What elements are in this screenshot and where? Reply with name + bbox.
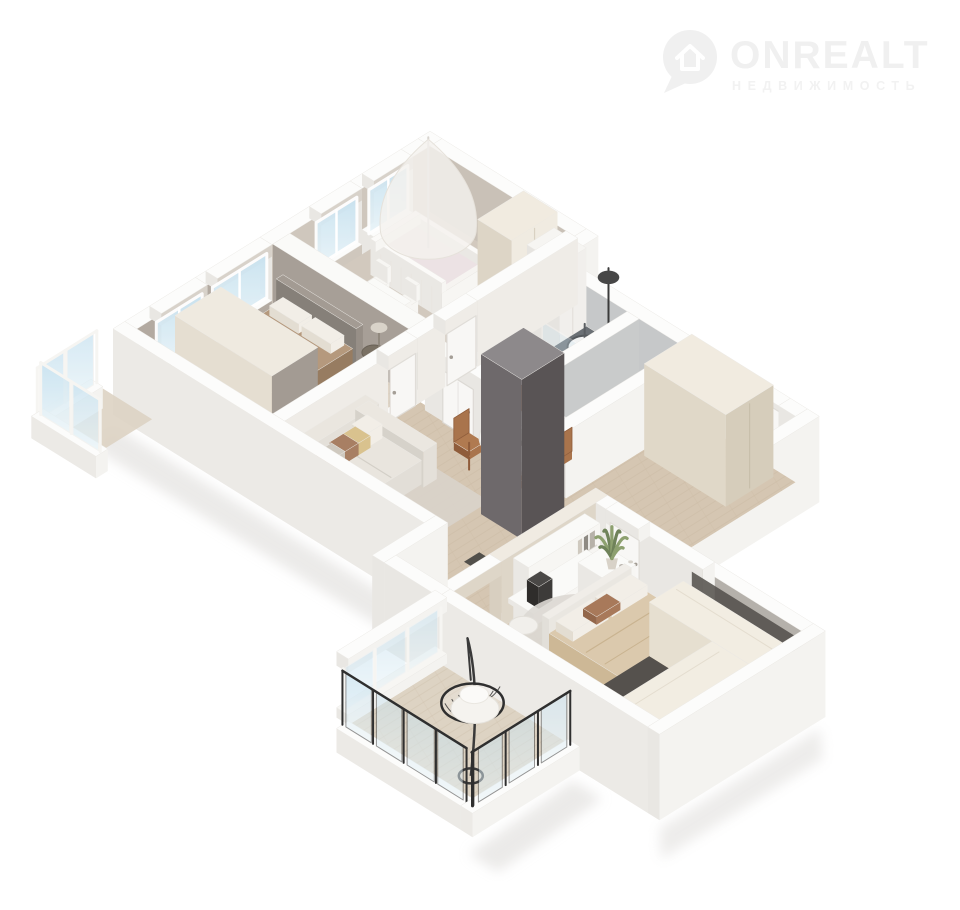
floor-plan-render: ONREALT НЕДВИЖИМОСТЬ bbox=[0, 0, 960, 910]
onrealt-watermark: ONREALT НЕДВИЖИМОСТЬ bbox=[663, 30, 930, 93]
location-pin-house-icon bbox=[663, 30, 717, 93]
floor-plan-screenshot: ONREALT НЕДВИЖИМОСТЬ bbox=[0, 0, 960, 910]
watermark-tagline-text: НЕДВИЖИМОСТЬ bbox=[732, 79, 921, 93]
watermark-brand-text: ONREALT bbox=[730, 34, 930, 77]
